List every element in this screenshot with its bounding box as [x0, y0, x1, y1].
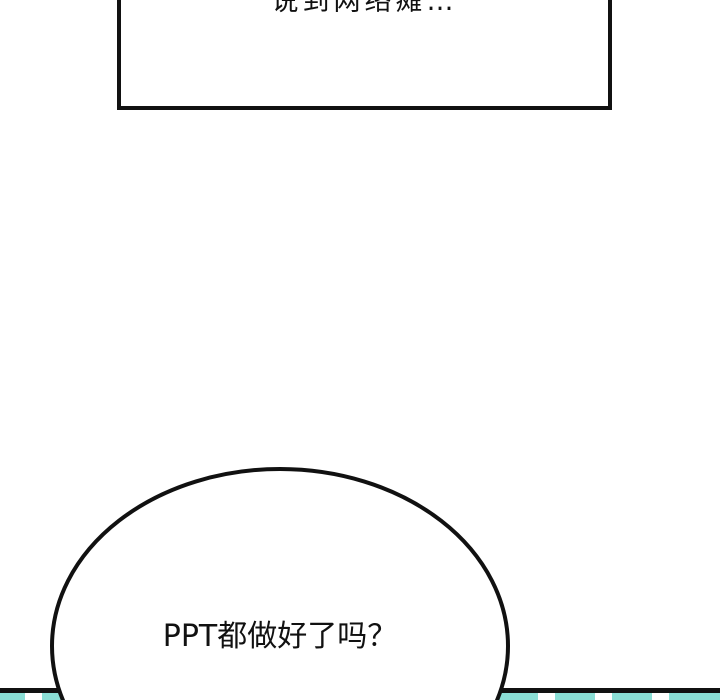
speech-bubble-layer [0, 0, 720, 700]
narration-text: 说到网络瘫… [117, 0, 612, 15]
speech-bubble-outline [52, 469, 508, 700]
speech-bubble-text: PPT都做好了吗？ [52, 620, 508, 654]
comic-page: 说到网络瘫… PPT都做好了吗？ [0, 0, 720, 700]
